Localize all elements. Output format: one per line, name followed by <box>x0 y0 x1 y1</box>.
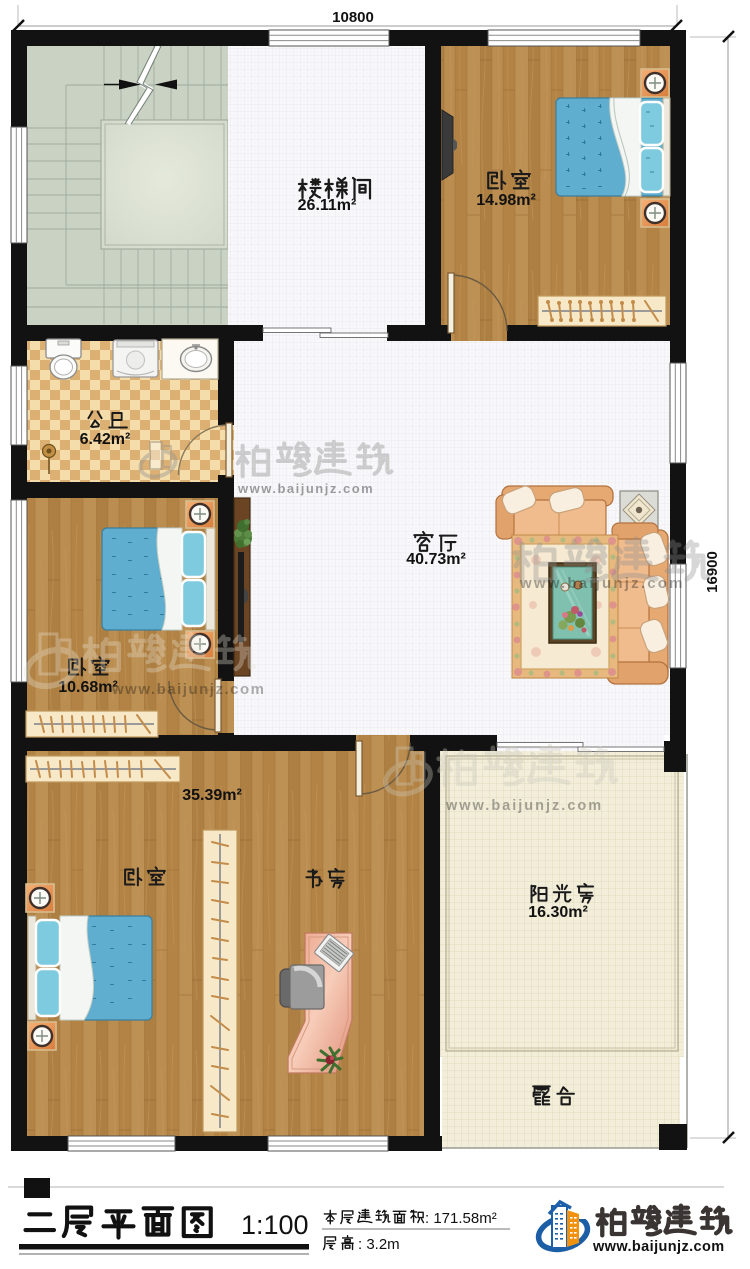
svg-text:14.98m²: 14.98m² <box>476 192 536 209</box>
svg-text:www.baijunjz.com: www.baijunjz.com <box>519 575 685 592</box>
svg-text:26.11m²: 26.11m² <box>298 197 357 214</box>
svg-text:35.39m²: 35.39m² <box>182 787 242 804</box>
svg-text:6.42m²: 6.42m² <box>80 431 131 448</box>
svg-text:1:100: 1:100 <box>241 1210 309 1240</box>
svg-text:16.30m²: 16.30m² <box>528 904 588 921</box>
svg-text:40.73m²: 40.73m² <box>406 551 466 568</box>
svg-text:www.baijunjz.com: www.baijunjz.com <box>445 798 603 814</box>
svg-text:www.baijunjz.com: www.baijunjz.com <box>237 481 374 496</box>
svg-text:16900: 16900 <box>704 551 721 593</box>
svg-text:www.baijunjz.com: www.baijunjz.com <box>111 681 265 698</box>
svg-text:: 171.58m²: : 171.58m² <box>425 1210 497 1227</box>
svg-text:: 3.2m: : 3.2m <box>358 1236 400 1253</box>
svg-text:10800: 10800 <box>332 9 374 26</box>
svg-text:www.baijunjz.com: www.baijunjz.com <box>592 1239 725 1255</box>
